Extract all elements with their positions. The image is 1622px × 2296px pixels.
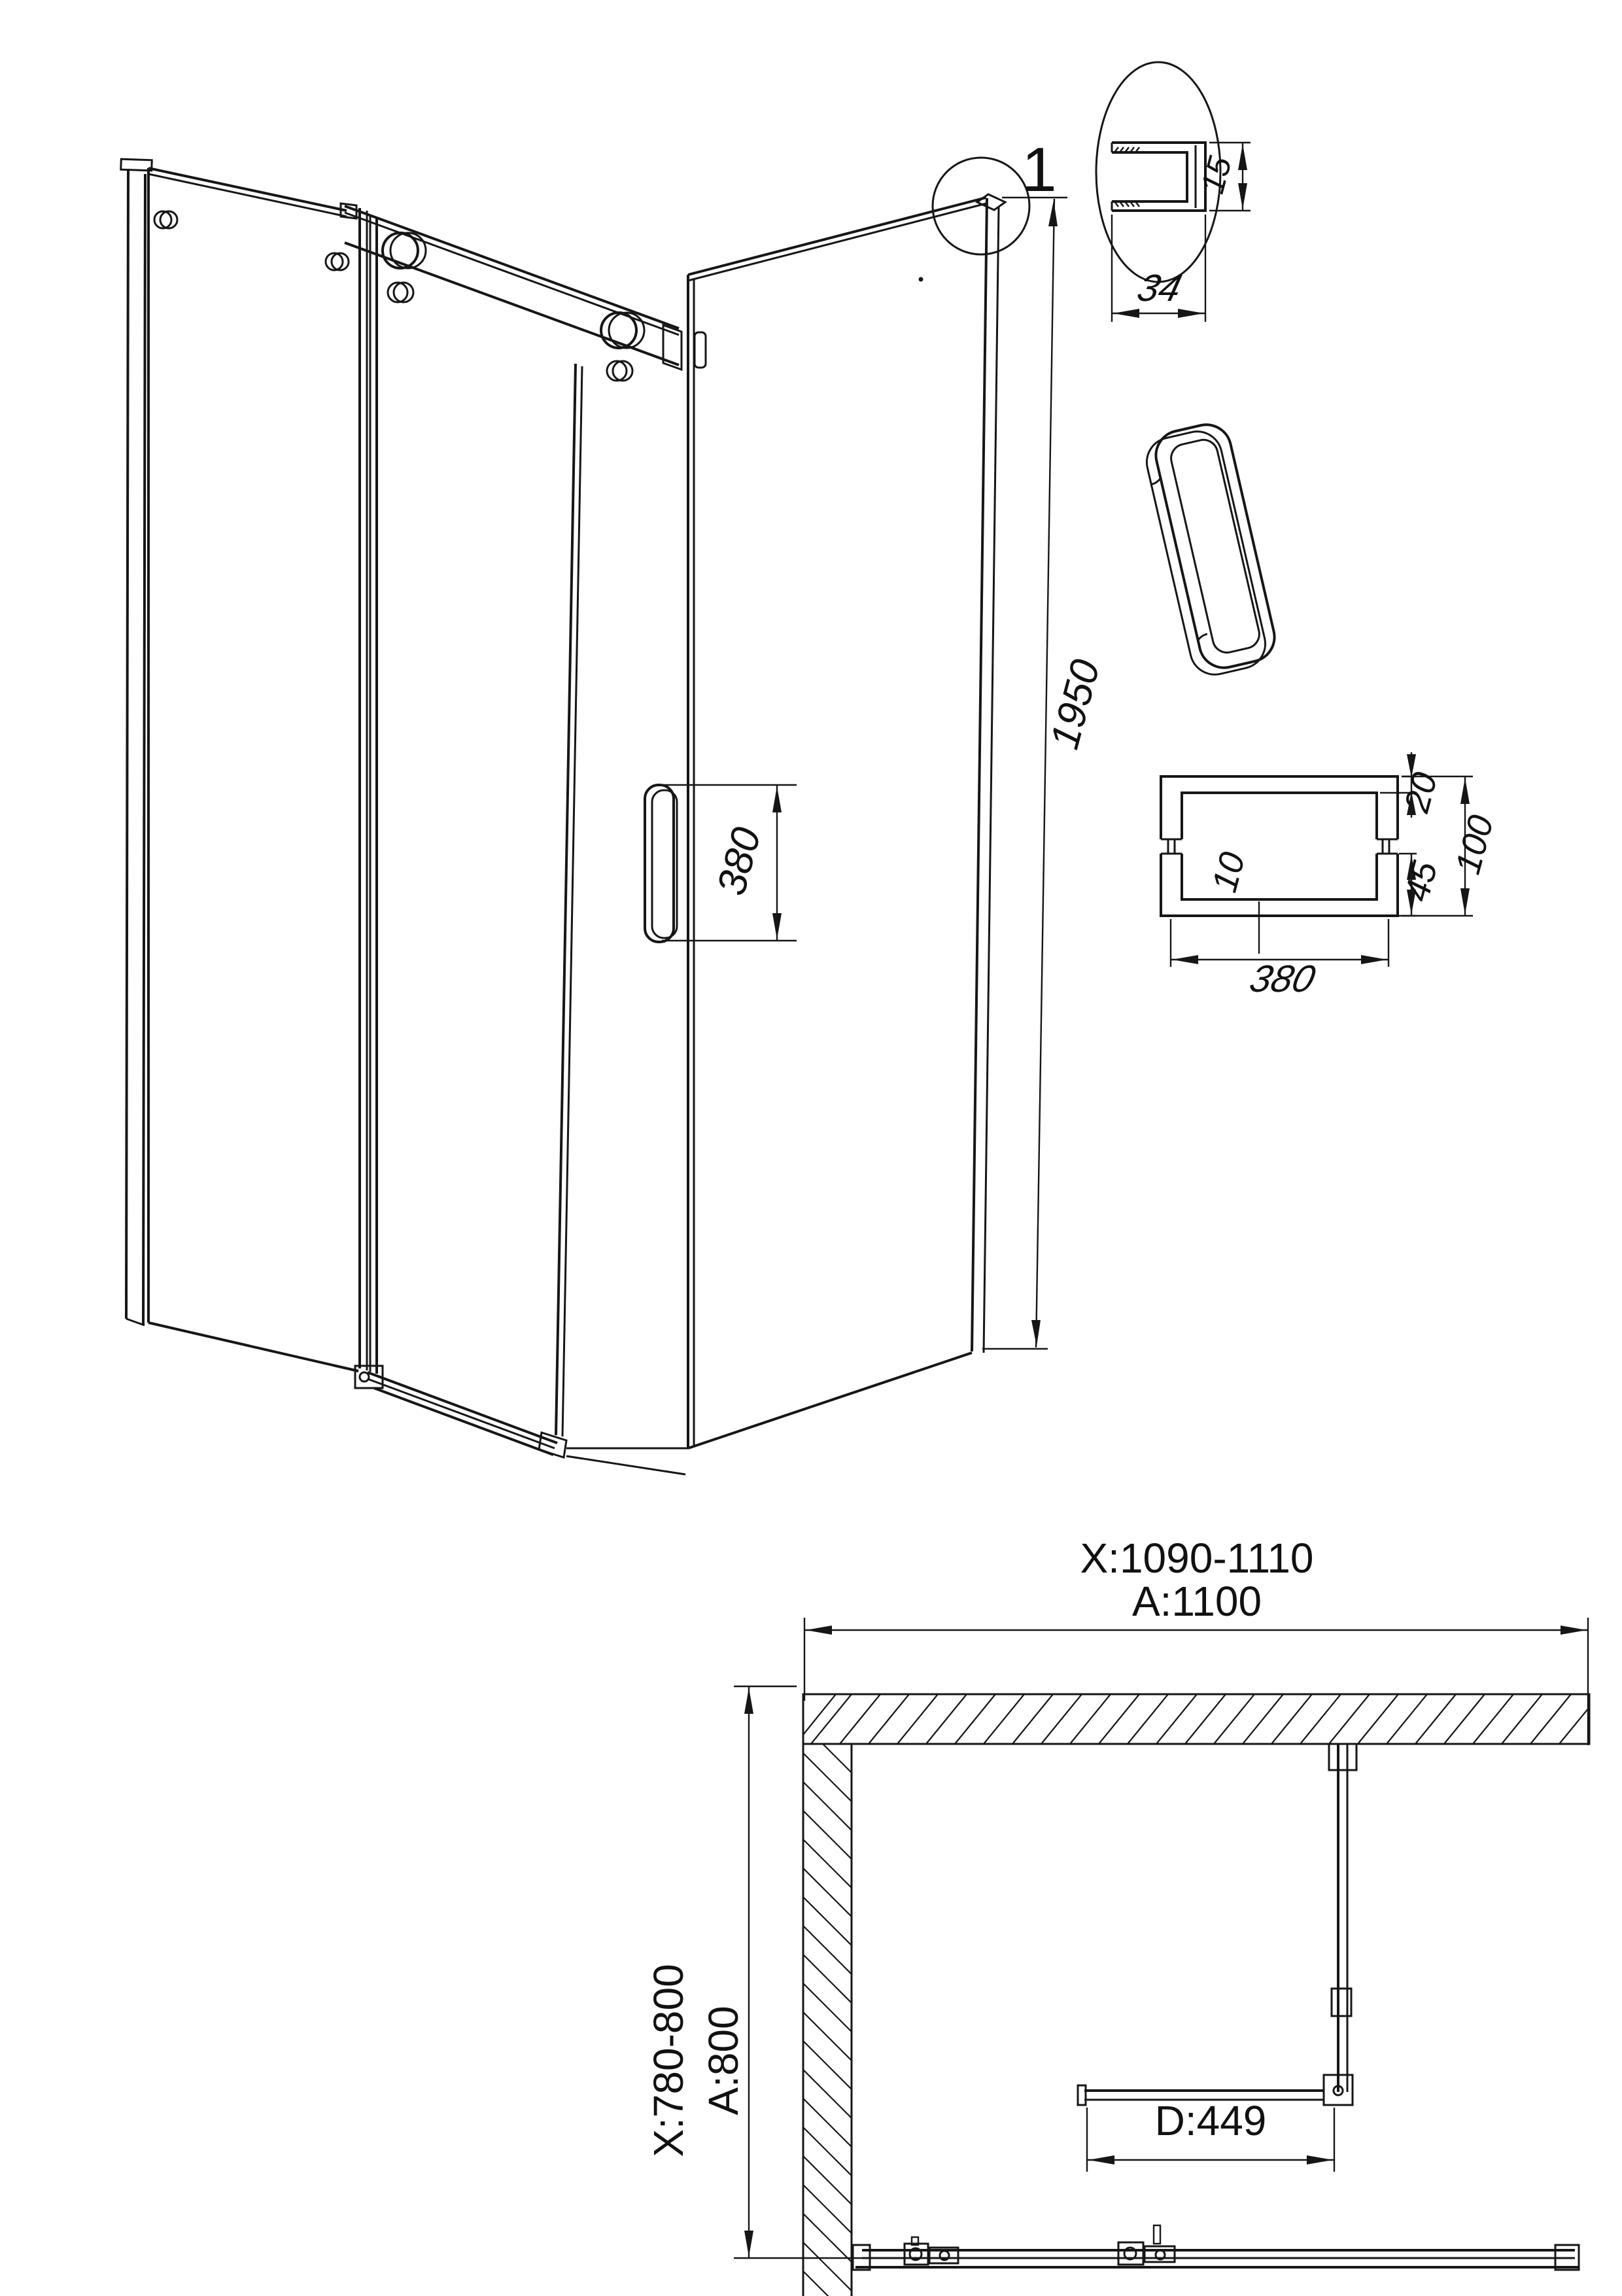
profile-section [1112, 143, 1205, 211]
handle-cross-section-view: 20 45 100 10 380 [1159, 752, 1501, 1000]
plan-width-range-label: X:1090-1110 [1080, 1535, 1313, 1582]
dim-inner-gap: 10 [1205, 848, 1259, 954]
technical-drawing-canvas: 380 1950 1 [0, 0, 1622, 2296]
drawing-page: 380 1950 1 [0, 0, 1622, 2296]
detail-callout-label: 1 [1022, 135, 1056, 205]
plan-view: X:1090-1110 A:1100 X:780-800 A:800 [645, 1535, 1589, 2296]
plan-front-assembly [853, 2225, 1579, 2270]
dim-text-15: 15 [1194, 152, 1239, 197]
dim-text-20: 20 [1397, 769, 1445, 818]
wall-profile-detail-view: 34 15 [1096, 62, 1251, 322]
dim-text-45: 45 [1397, 857, 1445, 905]
roller-wheel [383, 233, 426, 302]
plan-side-glass [1324, 1744, 1356, 2105]
plan-depth-label: A:800 [700, 2006, 747, 2115]
left-wall [803, 1744, 852, 2296]
dim-handle-height: 380 [662, 785, 797, 941]
dim-overall-height: 1950 [982, 198, 1109, 1349]
detail-callout: 1 [933, 135, 1057, 254]
dim-profile-depth: 15 [1194, 143, 1251, 211]
handle-3d-view [1141, 420, 1280, 680]
dim-text-380-door: 380 [708, 823, 769, 900]
dim-profile-width: 34 [1112, 215, 1205, 322]
plan-door-label: D:449 [1155, 2097, 1267, 2144]
dim-plan-door: D:449 [1087, 2097, 1334, 2172]
roller-wheel [601, 313, 644, 381]
dim-text-10: 10 [1205, 848, 1253, 897]
dim-plan-width [804, 1618, 1588, 1745]
fixed-glass-panel [148, 168, 358, 1371]
dim-text-380-handle: 380 [1245, 958, 1319, 1000]
bottom-rail [368, 1372, 688, 1474]
plan-width-label: A:1100 [1132, 1578, 1262, 1625]
mounting-hole [154, 211, 177, 228]
center-post-profile [355, 208, 383, 1388]
dim-text-100: 100 [1448, 811, 1501, 878]
dim-top-wall: 20 [1380, 752, 1445, 818]
dim-text-1950: 1950 [1042, 655, 1109, 754]
back-wall [803, 1694, 1589, 1744]
dim-post-height: 45 [1380, 854, 1445, 916]
dim-text-34: 34 [1133, 268, 1186, 309]
dim-handle-length: 380 [1171, 919, 1389, 1000]
plan-depth-range-label: X:780-800 [645, 1964, 692, 2157]
panel-slot [695, 332, 706, 368]
dim-plan-depth [734, 1686, 865, 2258]
door-handle [645, 785, 677, 942]
mounting-hole [326, 253, 349, 270]
side-glass-panel [688, 194, 1005, 1448]
elevation-view: 380 1950 1 [121, 135, 1109, 1474]
sliding-door [539, 364, 677, 1457]
